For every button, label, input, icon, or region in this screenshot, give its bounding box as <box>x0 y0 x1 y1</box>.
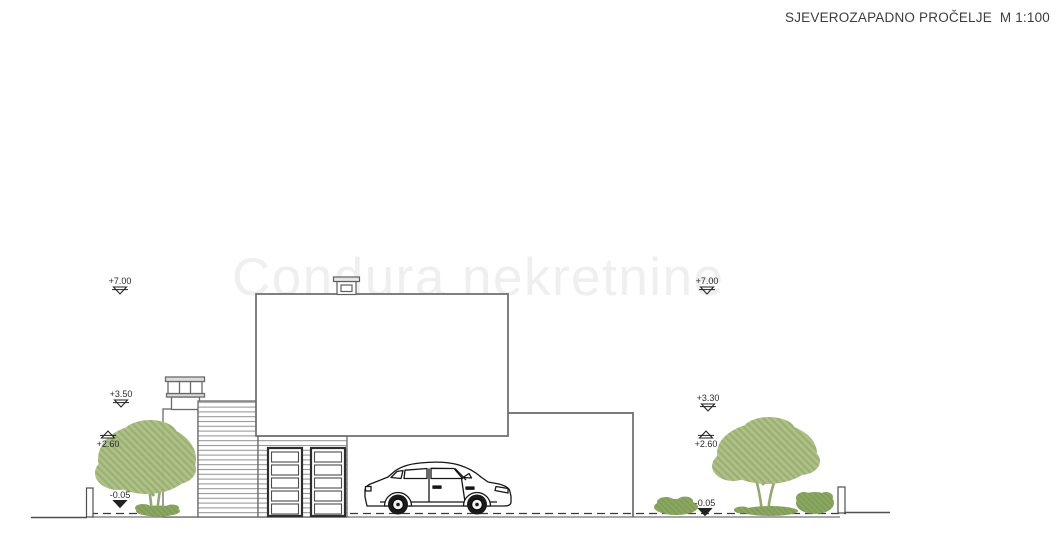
drawing-title: SJEVEROZAPADNO PROČELJE M 1:100 <box>785 10 1050 25</box>
main-building-volume <box>256 294 508 436</box>
left-boundary-post <box>87 488 94 517</box>
level-marker-up-icon <box>100 430 116 439</box>
level-marker-label: +2.60 <box>97 439 120 449</box>
garage-door-right <box>311 448 345 516</box>
car-front-wheel <box>464 493 491 515</box>
car-door-handle <box>466 487 474 489</box>
level-marker-right-330: +3.30 <box>688 393 728 412</box>
ground-cover-left-tree-base <box>135 504 180 517</box>
right-wing-wall <box>508 413 633 517</box>
chimney-cap <box>166 377 205 382</box>
chimney-stem <box>172 397 200 410</box>
roof-chimney <box>334 277 360 295</box>
level-marker-label: +3.50 <box>110 389 133 399</box>
level-marker-down-icon <box>699 286 715 295</box>
level-marker-right-700: +7.00 <box>687 276 727 295</box>
roof-chimney-flue <box>341 285 352 292</box>
right-tree-canopy <box>712 417 820 484</box>
level-marker-down-icon <box>700 403 716 412</box>
level-marker-right-260: +2.60 <box>686 430 726 449</box>
car <box>365 462 511 514</box>
level-marker-left-260: +2.60 <box>88 430 128 449</box>
level-marker-up-icon <box>698 430 714 439</box>
cladding-wall-upper <box>198 401 258 517</box>
level-marker-filled-icon <box>112 500 128 508</box>
roof-chimney-cap <box>334 277 360 282</box>
level-marker-label: +7.00 <box>696 276 719 286</box>
chimney-vent-frame <box>168 382 202 394</box>
level-marker-filled-icon <box>697 508 713 516</box>
level-marker-label: +2.60 <box>695 439 718 449</box>
elevation-drawing-page: Condura nekretnine <box>0 0 1056 557</box>
bush-near-right-post <box>796 492 834 514</box>
car-rear-wheel <box>385 493 412 515</box>
garage-door-left <box>268 448 302 516</box>
car-taillight <box>366 487 372 492</box>
level-marker-down-icon <box>112 286 128 295</box>
level-marker-left-350: +3.50 <box>101 389 141 408</box>
level-marker-label: -0.05 <box>695 498 716 508</box>
level-marker-left-700: +7.00 <box>100 276 140 295</box>
facade-drawing <box>0 0 1056 557</box>
level-marker-label: -0.05 <box>110 490 131 500</box>
level-marker-right-005: -0.05 <box>685 498 725 516</box>
ground-cover-right-tree-base <box>734 506 798 516</box>
right-boundary-post <box>838 487 845 513</box>
car-door-handle <box>433 486 441 488</box>
level-marker-label: +3.30 <box>697 393 720 403</box>
level-marker-down-icon <box>113 399 129 408</box>
level-marker-left-005: -0.05 <box>100 490 140 508</box>
level-marker-label: +7.00 <box>109 276 132 286</box>
